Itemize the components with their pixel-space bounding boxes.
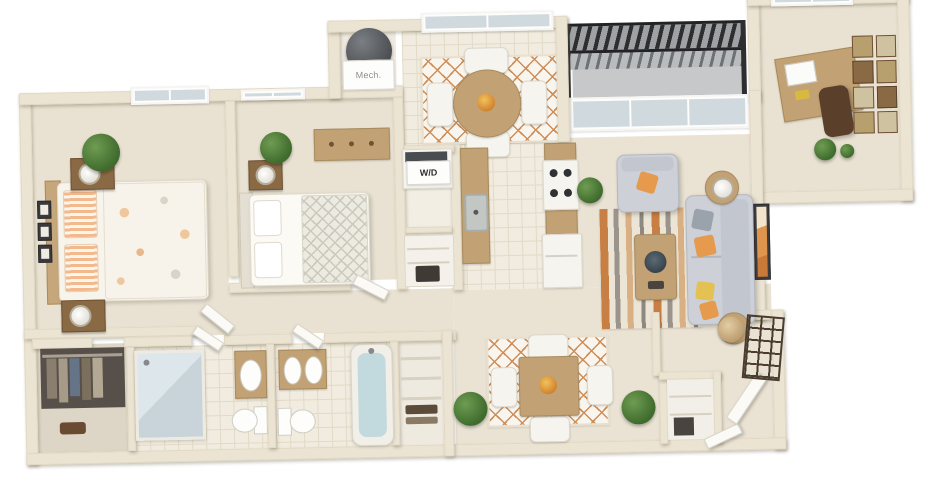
dresser-knob-3: [369, 141, 374, 146]
sofa-cushion-seam: [691, 256, 721, 259]
living-wall-art: [753, 204, 771, 280]
closet-clothes-4: [81, 358, 91, 400]
living-wall-art-canvas: [756, 207, 767, 277]
entry-closet-shelf-2: [670, 413, 712, 416]
bedroom-2-dresser: [314, 128, 391, 162]
gallery-frame-5: [853, 86, 874, 109]
walk-in-closet-interior: [40, 347, 125, 409]
closet-clothes-3: [69, 358, 80, 396]
kitchen-sink: [464, 193, 489, 231]
bath2-sink-2: [304, 356, 323, 384]
gallery-frame-4: [876, 60, 897, 83]
dining-chair-left: [491, 367, 518, 408]
bedroom-2-pillow-2: [254, 242, 283, 279]
wall-office-left: [747, 0, 761, 102]
armchair-pillow: [635, 171, 659, 195]
stove-burner-4: [564, 189, 572, 197]
laundry-storage-item: [416, 266, 440, 282]
entry-trellis-decor: [742, 314, 785, 381]
master-bedroom-window: [131, 85, 209, 105]
sofa-pillow-orange-2: [699, 300, 720, 321]
gallery-frame-7: [853, 111, 874, 134]
gallery-frame-8: [877, 111, 898, 134]
master-wall-frame-1: [37, 201, 51, 219]
wall-linen-right: [442, 330, 455, 456]
balcony-rail-right: [740, 20, 747, 98]
dresser-knob-1: [329, 142, 334, 147]
kitchen-faucet: [473, 210, 478, 215]
hallway-floor: [199, 288, 454, 335]
armchair: [616, 153, 679, 212]
coffee-table: [634, 234, 677, 301]
bathtub: [350, 344, 394, 447]
stove-burner-1: [550, 169, 558, 177]
master-bed: [45, 177, 210, 302]
bathtub-basin: [357, 353, 387, 438]
dining-chair-right: [587, 365, 614, 406]
refrigerator-divider: [545, 255, 577, 258]
sliding-glass-door: [569, 94, 750, 132]
bath1-vanity: [234, 350, 267, 399]
dining-chair-bottom: [530, 416, 571, 443]
floor-plan-render: Mech. W/D: [0, 0, 928, 482]
coffee-table-tray: [644, 251, 666, 273]
sofa-pillow-yellow: [695, 281, 715, 301]
mech-label: Mech.: [342, 59, 395, 90]
entry-closet-item: [674, 417, 694, 435]
wall-bath-top-3: [224, 334, 292, 345]
bedroom-2-window: [241, 88, 305, 100]
kitchen-stove: [542, 160, 579, 211]
sofa: [685, 194, 756, 325]
master-wall-frame-2: [38, 223, 52, 241]
entry-closet-shelf-1: [669, 395, 711, 398]
gallery-frame-1: [852, 35, 873, 58]
laptop: [784, 60, 817, 87]
bath2-sink-1: [283, 356, 302, 384]
breakfast-nook-window: [421, 10, 553, 33]
master-wall-frame-3: [38, 245, 52, 263]
armchair-backrest: [621, 157, 673, 172]
stove-burner-3: [550, 189, 558, 197]
laundry-shelf-1: [407, 247, 449, 250]
gallery-frame-6: [876, 85, 897, 108]
linen-closet-floor: [398, 336, 444, 445]
wd-label: W/D: [406, 160, 450, 185]
bath1-sink: [239, 359, 262, 391]
linen-towels-2: [406, 417, 438, 425]
stove-burner-2: [564, 169, 572, 177]
shower-head: [143, 360, 149, 366]
dresser-knob-2: [349, 141, 354, 146]
closet-shoes: [60, 422, 86, 435]
mech-label-text: Mech.: [356, 70, 382, 81]
master-bed-blanket: [103, 181, 207, 299]
shower: [134, 349, 206, 440]
bedroom-2-bed: [239, 190, 371, 287]
apartment-floor-plan: Mech. W/D: [0, 0, 928, 482]
closet-clothes-2: [58, 358, 68, 402]
gallery-frame-2: [875, 35, 896, 58]
wall-laundry-shelf-divider: [406, 226, 452, 233]
office-desk-book: [795, 89, 810, 100]
wall-bath-top-2: [124, 336, 192, 347]
entry-closet-interior: [667, 379, 714, 440]
bedroom-2-blanket: [301, 194, 369, 283]
sofa-pillow-orange-1: [693, 234, 717, 258]
laundry-shelf-2: [407, 261, 449, 264]
wall-office-bottom: [763, 189, 913, 204]
master-bed-pillow-1: [63, 190, 98, 239]
laundry-shelves: [404, 234, 455, 287]
nook-chair-left: [427, 82, 454, 127]
linen-towels-1: [405, 405, 437, 415]
refrigerator: [542, 234, 583, 289]
balcony-railing: [567, 20, 746, 54]
closet-clothes-1: [46, 359, 57, 399]
master-bed-pillow-2: [64, 244, 99, 293]
gallery-frame-3: [852, 61, 873, 84]
nook-chair-right: [521, 80, 548, 125]
coffee-table-remote: [648, 281, 664, 289]
office-gallery-wall: [852, 35, 898, 134]
wall-entry-left-stub: [652, 312, 661, 376]
wd-label-text: W/D: [420, 168, 438, 178]
bedroom-2-pillow-1: [253, 200, 282, 237]
bath2-vanity: [278, 349, 327, 390]
closet-clothes-5: [92, 358, 103, 398]
sofa-backrest: [720, 199, 751, 320]
sofa-pillow-gray: [691, 208, 714, 231]
